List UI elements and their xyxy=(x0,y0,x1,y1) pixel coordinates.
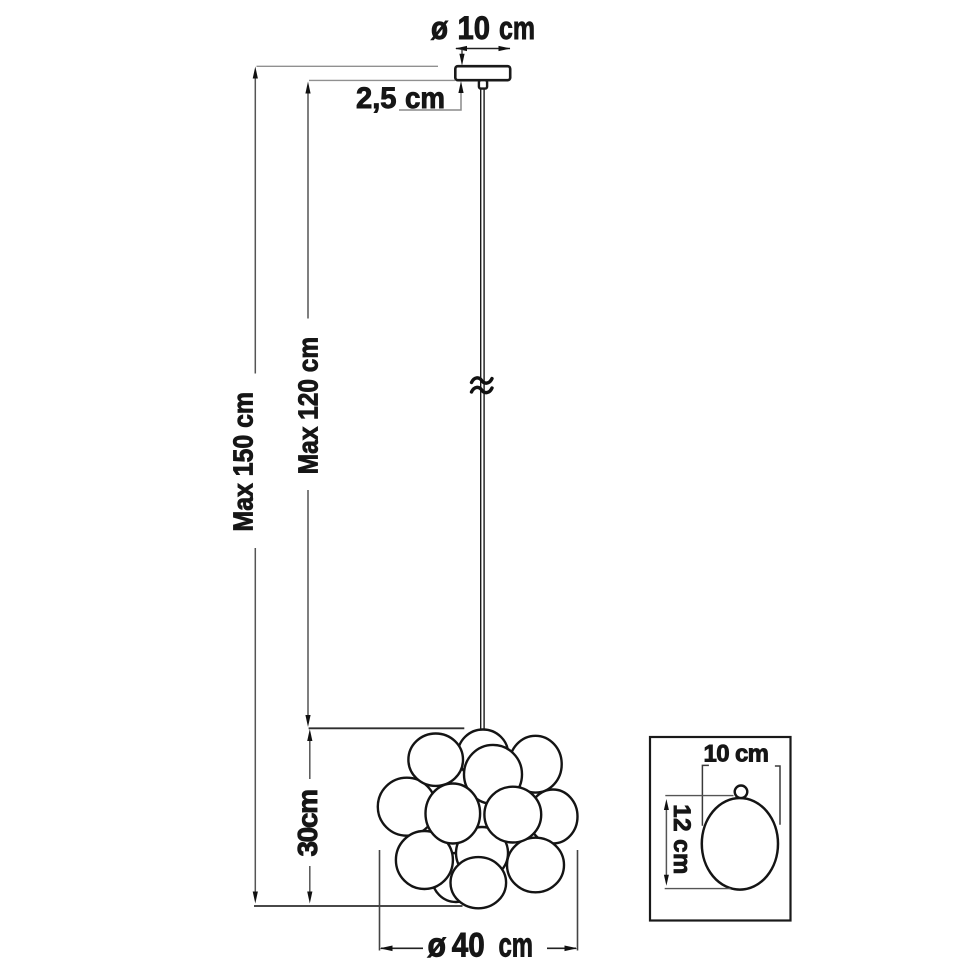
svg-text:10 cm: 10 cm xyxy=(704,740,770,767)
svg-text:2,5: 2,5 xyxy=(356,82,397,115)
svg-text:ø: ø xyxy=(428,926,447,964)
svg-text:10: 10 xyxy=(458,10,491,46)
svg-text:40: 40 xyxy=(452,926,485,964)
svg-text:Max 150 cm: Max 150 cm xyxy=(227,392,258,532)
svg-text:cm: cm xyxy=(499,10,535,46)
svg-text:ø: ø xyxy=(431,10,448,46)
svg-text:30cm: 30cm xyxy=(292,789,323,857)
svg-text:cm: cm xyxy=(499,926,534,964)
svg-text:Max 120 cm: Max 120 cm xyxy=(292,337,323,475)
svg-text:12 cm: 12 cm xyxy=(668,804,695,874)
